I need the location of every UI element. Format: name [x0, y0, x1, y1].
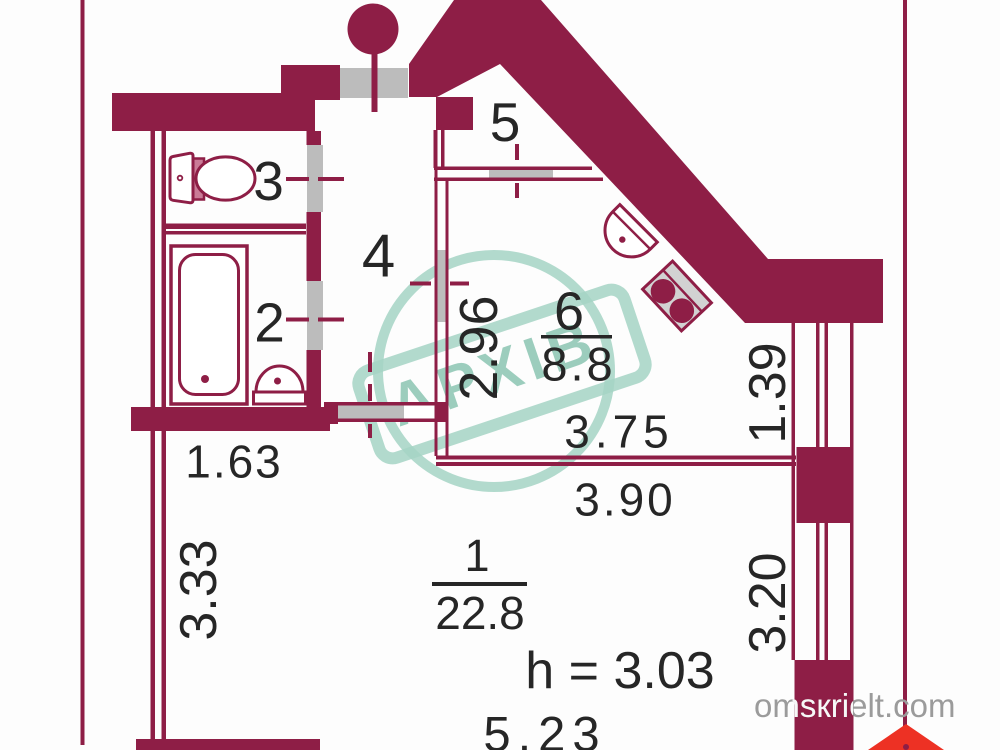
svg-text:2: 2 — [254, 292, 285, 354]
svg-text:22.8: 22.8 — [435, 587, 525, 639]
svg-text:5.23: 5.23 — [483, 708, 606, 750]
svg-text:3.20: 3.20 — [739, 552, 797, 653]
svg-text:2.96: 2.96 — [449, 295, 509, 400]
svg-text:3.33: 3.33 — [170, 539, 228, 640]
svg-text:h = 3.03: h = 3.03 — [525, 642, 714, 700]
svg-text:1: 1 — [464, 530, 489, 581]
svg-text:1.39: 1.39 — [739, 342, 797, 443]
svg-text:6: 6 — [554, 282, 584, 342]
svg-text:omsкrielt.com: omsкrielt.com — [754, 687, 955, 724]
svg-text:3.75: 3.75 — [564, 406, 674, 458]
svg-text:8.8: 8.8 — [541, 338, 615, 391]
svg-text:3.90: 3.90 — [574, 474, 676, 526]
svg-text:5: 5 — [490, 91, 521, 153]
svg-text:4: 4 — [362, 223, 395, 290]
svg-text:1.63: 1.63 — [185, 436, 283, 488]
svg-text:3: 3 — [253, 150, 284, 212]
